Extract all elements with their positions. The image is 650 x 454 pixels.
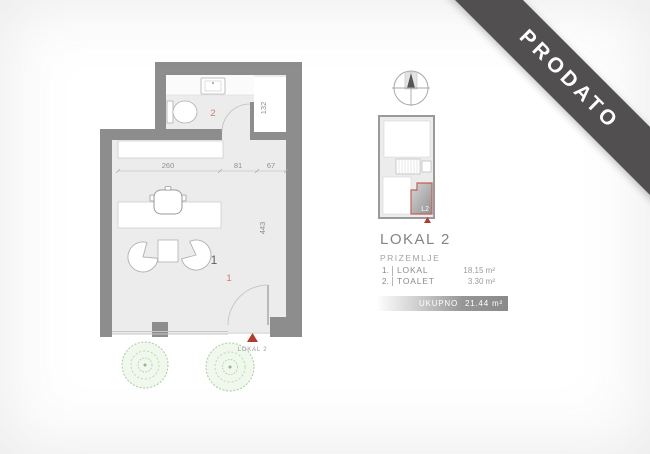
entry-marker-label: LOKAL 2	[238, 347, 268, 353]
unit-title: LOKAL 2	[380, 231, 451, 248]
sink-icon	[201, 78, 225, 94]
sold-ribbon: PRODATO	[439, 0, 650, 210]
wall-pillar	[152, 322, 168, 337]
stairs-icon	[396, 159, 420, 174]
wall-right	[286, 62, 302, 337]
dim-260: 260	[162, 161, 175, 170]
room-name: TOALET	[392, 277, 451, 287]
total-area-bar: UKUPNO 21.44 m²	[378, 296, 508, 311]
wall-left	[100, 129, 112, 337]
room1-orange-label: 1	[226, 273, 231, 284]
dim-443: 443	[258, 222, 267, 235]
dim-132: 132	[259, 102, 268, 115]
dim-67: 67	[267, 161, 275, 170]
room2-label: 2	[210, 108, 215, 119]
room-list-row: 1. LOKAL 18.15 m²	[379, 266, 495, 276]
room-list: 1. LOKAL 18.15 m² 2. TOALET 3.30 m²	[379, 266, 495, 287]
counter-upper	[118, 141, 223, 158]
floorplan-page: PRODATO	[0, 0, 650, 454]
total-label: UKUPNO	[419, 299, 458, 308]
floor-plan: 260 81 67 132 443 2 1 1 LOKAL 2	[88, 52, 323, 402]
key-map: L2	[376, 62, 446, 232]
wall-corner-block	[270, 317, 302, 337]
wall-main-top	[100, 129, 222, 140]
room-area: 18.15 m²	[451, 266, 495, 276]
total-area-value: 21.44 m²	[465, 299, 503, 308]
unit-highlight-label: L2	[421, 206, 429, 213]
room1-gray-label: 1	[211, 253, 218, 267]
wall-top	[155, 62, 302, 75]
room-number: 1.	[379, 266, 392, 276]
room-name: LOKAL	[392, 266, 451, 276]
table	[158, 240, 178, 262]
toilet-icon	[167, 101, 197, 123]
entry-arrow-icon	[247, 333, 258, 342]
room-area: 3.30 m²	[451, 277, 495, 287]
wall-toilet-left	[155, 62, 166, 140]
compass-icon	[392, 71, 430, 106]
room-number: 2.	[379, 277, 392, 287]
unit-floor: PRIZEMLJE	[380, 253, 440, 263]
main-room-floor	[112, 140, 286, 334]
wall-niche-bottom	[250, 132, 286, 140]
sold-ribbon-label: PRODATO	[514, 25, 624, 135]
room-list-row: 2. TOALET 3.30 m²	[379, 277, 495, 287]
dim-81: 81	[234, 161, 242, 170]
tree-icon	[122, 342, 168, 388]
